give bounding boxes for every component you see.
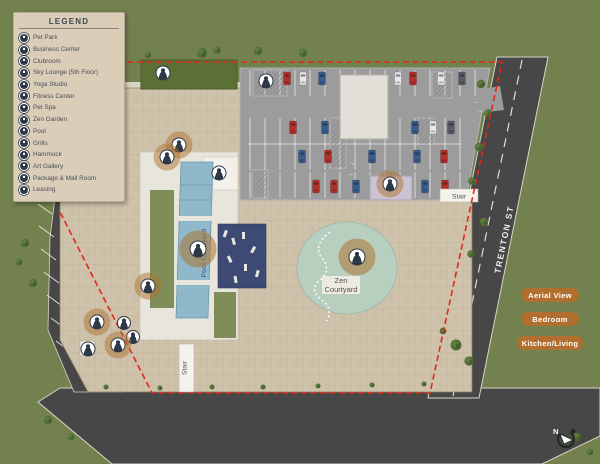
legend-item-label: Pet Park xyxy=(33,34,58,41)
pool-icon xyxy=(19,126,29,136)
clubroom-marker[interactable] xyxy=(212,166,227,181)
art-gallery-marker[interactable] xyxy=(111,338,126,353)
legend-item-label: Clubroom xyxy=(33,58,61,65)
stair-south-label: Stair xyxy=(182,360,189,375)
compass-needle-icon xyxy=(560,434,573,444)
grills-marker[interactable] xyxy=(117,316,131,330)
sky-lounge-5th-floor-icon xyxy=(19,68,29,78)
legend-item-label: Fitness Center xyxy=(33,93,75,100)
legend-item-label: Leasing xyxy=(33,186,55,193)
leasing-marker[interactable] xyxy=(81,342,96,357)
legend-item-pet-park: Pet Park xyxy=(19,32,119,44)
svg-text:→: → xyxy=(348,160,355,167)
svg-text:→: → xyxy=(477,108,483,114)
legend-item-yoga-studio: Yoga Studio xyxy=(19,79,119,91)
spa-deck xyxy=(218,224,266,288)
compass-control[interactable]: N xyxy=(551,424,579,452)
business-center-icon xyxy=(19,45,29,55)
legend-item-label: Yoga Studio xyxy=(33,81,67,88)
legend-item-label: Sky Lounge (5th Floor) xyxy=(33,69,98,76)
hammock-marker[interactable] xyxy=(141,279,156,294)
legend-item-art-gallery: Art Gallery xyxy=(19,161,119,173)
pet-park-icon xyxy=(19,33,29,43)
legend-item-label: Hammock xyxy=(33,151,62,158)
aerial-view-button[interactable]: Aerial View xyxy=(521,288,579,302)
legend-item-fitness-center: Fitness Center xyxy=(19,90,119,102)
art-gallery-icon xyxy=(19,161,29,171)
legend-title: LEGEND xyxy=(19,17,119,29)
zen-garden-icon xyxy=(19,115,29,125)
zen-garden-marker[interactable] xyxy=(349,249,366,266)
pet-spa-marker[interactable] xyxy=(126,330,140,344)
yoga-studio-icon xyxy=(19,80,29,90)
leasing-icon xyxy=(19,185,29,195)
apartment-sitemap-app: →← ←→ xyxy=(0,0,600,464)
legend-panel: LEGEND Pet ParkBusiness CenterClubroomSk… xyxy=(13,12,125,202)
legend-item-pet-spa: Pet Spa xyxy=(19,102,119,114)
compass-north-label: N xyxy=(553,427,558,436)
hammock-icon xyxy=(19,150,29,160)
legend-item-label: Pool xyxy=(33,128,46,135)
legend-item-business-center: Business Center xyxy=(19,44,119,56)
clubroom-icon xyxy=(19,56,29,66)
legend-item-sky-lounge-5th-floor: Sky Lounge (5th Floor) xyxy=(19,67,119,79)
legend-item-clubroom: Clubroom xyxy=(19,55,119,67)
legend-item-label: Zen Garden xyxy=(33,116,67,123)
stair-east-label: Stair xyxy=(452,194,467,201)
legend-item-label: Grills xyxy=(33,140,48,147)
legend-item-package-mail-room: Package & Mail Room xyxy=(19,172,119,184)
yoga-studio-marker[interactable] xyxy=(90,315,105,330)
fitness-center-icon xyxy=(19,91,29,101)
pool-marker[interactable] xyxy=(190,241,207,258)
compass-arrowhead-icon xyxy=(570,428,577,434)
svg-text:←: ← xyxy=(474,99,480,105)
business-center-marker[interactable] xyxy=(259,74,274,89)
package-mail-room-icon xyxy=(19,173,29,183)
legend-item-leasing: Leasing xyxy=(19,184,119,196)
bedroom-button[interactable]: Bedroom xyxy=(521,312,579,326)
svg-text:←: ← xyxy=(348,171,355,178)
pet-spa-icon xyxy=(19,103,29,113)
zen-courtyard-label-line1: Zen xyxy=(335,276,348,285)
kitchen-living-button[interactable]: Kitchen/Living xyxy=(517,336,583,350)
legend-item-label: Business Center xyxy=(33,46,80,53)
grills-icon xyxy=(19,138,29,148)
parking-lot: →← ←→ xyxy=(240,68,504,200)
legend-item-label: Package & Mail Room xyxy=(33,175,96,182)
pet-park-marker[interactable] xyxy=(156,66,171,81)
legend-item-label: Art Gallery xyxy=(33,163,63,170)
sky-lounge-marker[interactable] xyxy=(172,138,187,153)
legend-item-label: Pet Spa xyxy=(33,104,56,111)
legend-item-pool: Pool xyxy=(19,126,119,138)
package-mail-room-marker[interactable] xyxy=(383,177,398,192)
legend-item-hammock: Hammock xyxy=(19,149,119,161)
legend-item-grills: Grills xyxy=(19,137,119,149)
podium-building xyxy=(340,75,388,139)
fitness-center-marker[interactable] xyxy=(160,150,175,165)
zen-courtyard-label-line2: Courtyard xyxy=(325,285,358,294)
legend-item-zen-garden: Zen Garden xyxy=(19,114,119,126)
